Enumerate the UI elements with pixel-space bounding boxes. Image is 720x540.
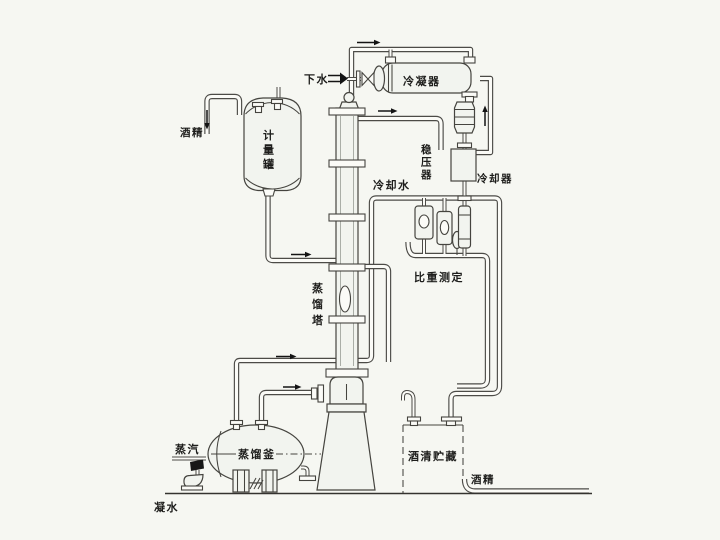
label-alcohol-out: 酒精 [471,473,495,486]
process-flow-diagram: 下水 冷凝器 稳压器 冷却水 冷却器 比重测定 酒精 计量罐 蒸馏塔 蒸馏釜 蒸… [0,0,720,540]
label-steam: 蒸汽 [175,442,200,456]
label-cooling-water: 冷却水 [373,178,411,192]
label-distillation-column: 蒸馏塔 [312,281,325,327]
label-distillation-kettle: 蒸馏釜 [238,447,276,461]
drain-water-arrow [328,73,348,85]
sight-tube [459,206,471,248]
steam-valve [190,460,204,472]
label-alcohol-storage: 酒清贮藏 [408,449,458,463]
cooling-up-arrow [482,106,487,127]
label-drain-water: 下水 [304,72,329,86]
vapor-flow-arrow [357,40,381,45]
condenser-vent-nozzle [464,57,475,63]
condenser-left-head [374,66,385,91]
steam-trap-boot [184,475,203,488]
label-gravity-measurement: 比重测定 [414,270,464,284]
cooler-box [451,149,476,181]
column-top-ball [344,93,354,103]
feed-arrow [291,252,312,257]
label-alcohol-in: 酒精 [180,126,204,139]
column-skirt [317,412,375,490]
tank-outlet [263,189,275,196]
kettle-drain-flange [300,476,316,481]
reflux-arrow [378,108,398,113]
label-measuring-tank: 计量罐 [262,128,276,171]
column-base-flange [326,369,368,377]
water-inlet-valve [362,73,374,86]
kettle-support-left [233,470,249,492]
sight-glass [340,286,351,312]
kettle-support-right [262,470,277,492]
label-stabilizer: 稳压器 [420,143,433,181]
label-condenser: 冷凝器 [403,74,441,88]
diagram-canvas: 下水 冷凝器 稳压器 冷却水 冷却器 比重测定 酒精 计量罐 蒸馏塔 蒸馏釜 蒸… [0,0,720,540]
vapor-riser-arrow [283,384,302,389]
label-condensate: 凝水 [154,500,179,514]
condenser-vapor-nozzle [386,57,396,63]
label-cooler: 冷却器 [477,172,513,185]
reboiler-inlet-flange [318,385,324,402]
